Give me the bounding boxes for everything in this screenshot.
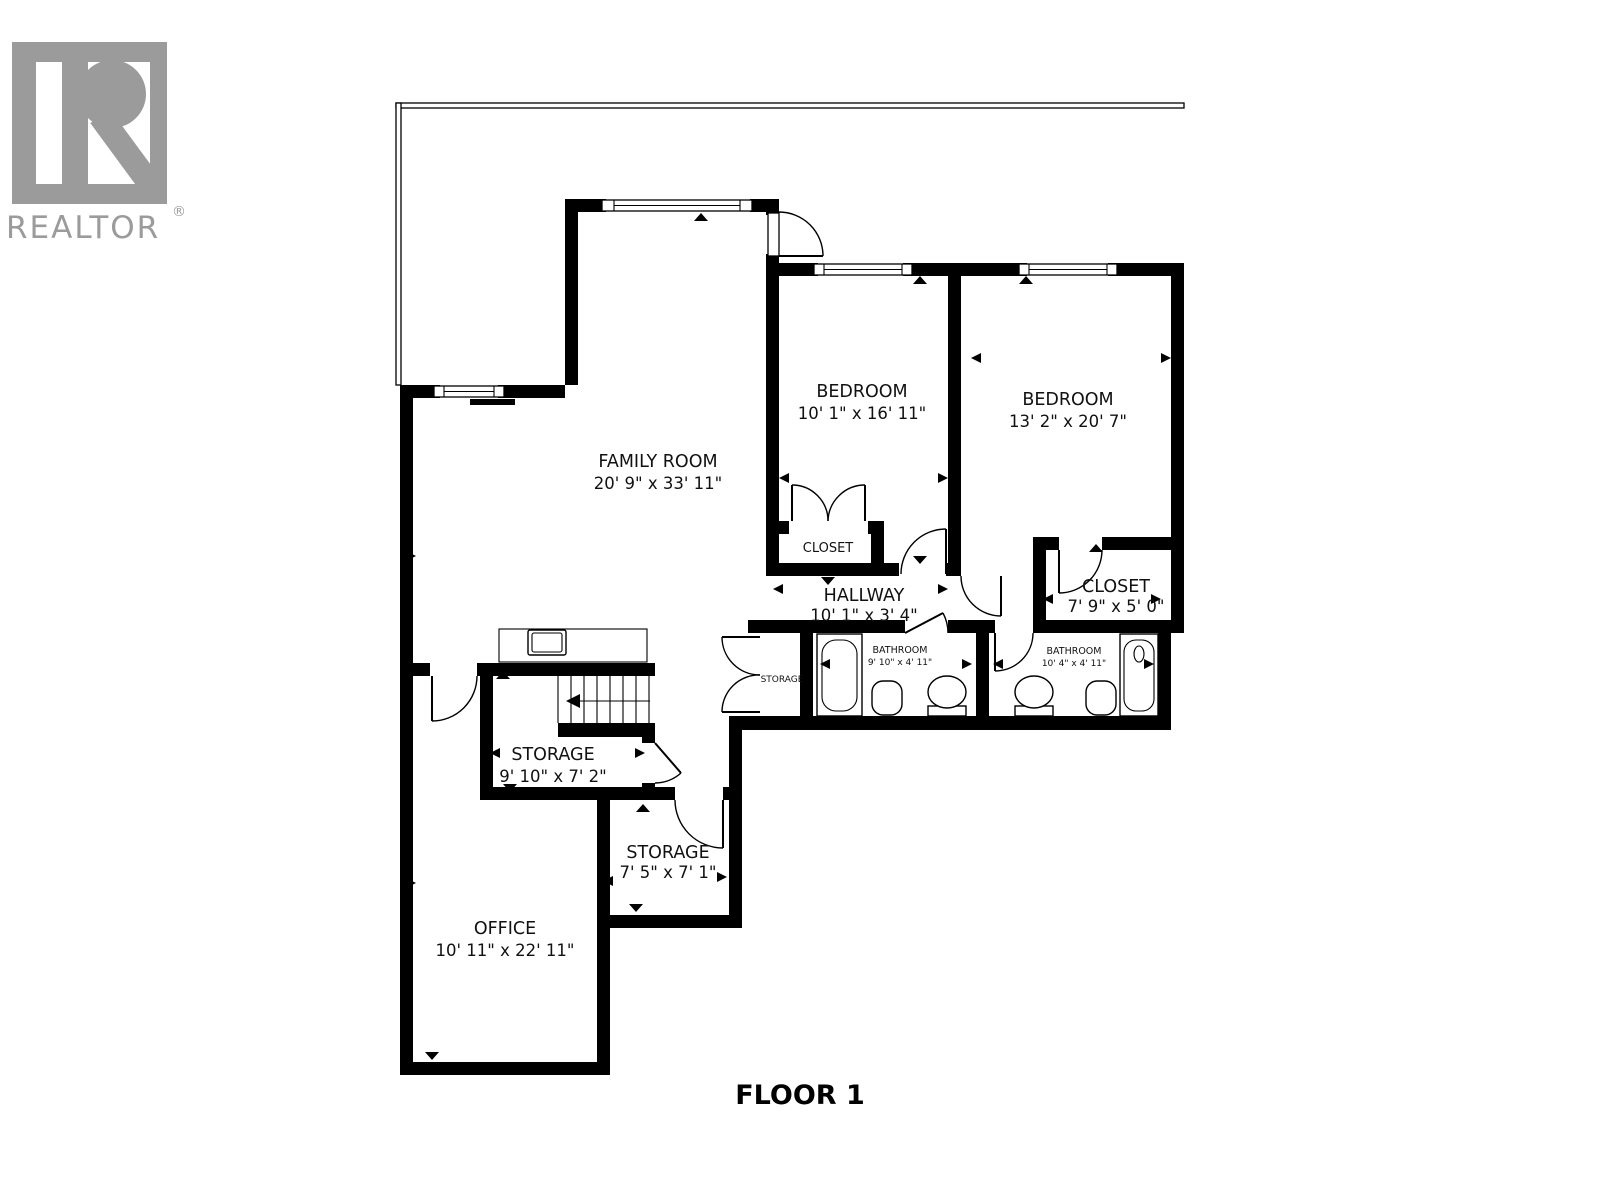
hall-storage-french-doors <box>722 637 760 712</box>
stair-direction-arrow <box>566 694 580 708</box>
office-dims: 10' 11" x 22' 11" <box>436 941 575 960</box>
bedroom2-door <box>961 576 1001 616</box>
office-label: OFFICE <box>474 919 536 939</box>
deck-door <box>768 212 823 256</box>
storage2-dims: 7' 5" x 7' 1" <box>620 863 717 882</box>
floor-plan-drawing: REALTOR ® <box>0 0 1600 1200</box>
storage2-label: STORAGE <box>626 843 709 863</box>
storage1-label: STORAGE <box>511 745 594 765</box>
bathroom2-dims: 10' 4" x 4' 11" <box>1042 659 1106 669</box>
floor-plan-page: REALTOR ® <box>0 0 1600 1200</box>
floor-title: FLOOR 1 <box>735 1080 865 1111</box>
bathtub-1 <box>817 634 862 716</box>
realtor-logo-text: REALTOR <box>6 210 160 246</box>
hallway-dims: 10' 1" x 3' 4" <box>810 606 917 625</box>
threshold-mark <box>470 399 515 405</box>
realtor-logo-stem-cutout <box>36 62 62 184</box>
closet2-label: CLOSET <box>1082 577 1150 597</box>
bathroom1-dims: 9' 10" x 4' 11" <box>868 658 932 668</box>
fireplace-counter <box>499 629 647 662</box>
bathroom2-label: BATHROOM <box>1047 646 1102 657</box>
bedroom1-dims: 10' 1" x 16' 11" <box>798 404 926 423</box>
bedroom2-dims: 13' 2" x 20' 7" <box>1009 412 1127 431</box>
family-room-label: FAMILY ROOM <box>598 452 717 472</box>
storage2-door <box>675 800 723 848</box>
bedroom1-closet-double-doors <box>792 485 865 521</box>
sink-2 <box>1086 681 1116 715</box>
storage1-dims: 9' 10" x 7' 2" <box>499 767 606 786</box>
toilet-2 <box>1015 676 1053 716</box>
bathroom1-label: BATHROOM <box>873 645 928 656</box>
closet1-label: CLOSET <box>803 541 854 556</box>
family-room-window-left <box>434 386 515 405</box>
bedroom2-label: BEDROOM <box>1022 390 1113 410</box>
sink-1 <box>872 681 902 715</box>
deck-outline <box>396 103 1184 385</box>
toilet-1 <box>928 676 966 716</box>
storage1-door <box>655 743 681 783</box>
hall-storage-label: STORAGE <box>761 675 804 685</box>
realtor-logo: REALTOR ® <box>6 42 186 246</box>
closet2-dims: 7' 9" x 5' 0" <box>1068 597 1165 616</box>
office-door <box>432 676 477 721</box>
bedroom1-door <box>901 529 946 574</box>
bathtub-2 <box>1120 634 1158 716</box>
hallway-label: HALLWAY <box>824 586 905 606</box>
family-room-dims: 20' 9" x 33' 11" <box>594 474 722 493</box>
registered-mark: ® <box>172 204 186 220</box>
staircase <box>558 676 650 723</box>
bedroom1-label: BEDROOM <box>816 382 907 402</box>
bedroom2-window <box>1019 264 1117 275</box>
bedroom1-window <box>814 264 912 275</box>
family-room-window-top <box>602 200 752 211</box>
